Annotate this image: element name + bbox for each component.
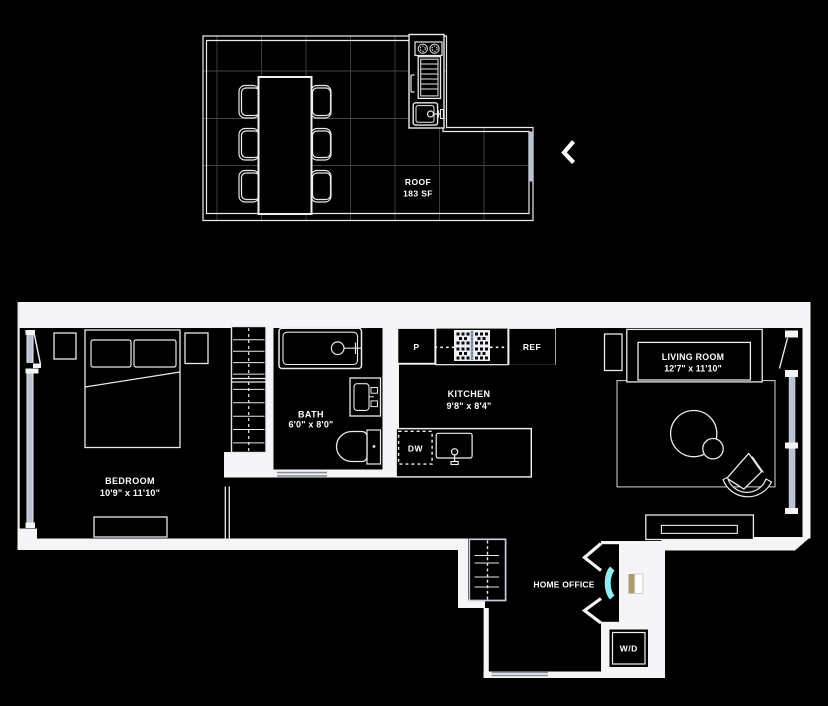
svg-text:BEDROOM: BEDROOM [105,476,155,486]
svg-text:KITCHEN: KITCHEN [448,389,491,399]
svg-text:DW: DW [408,444,424,454]
svg-text:12'7" x 11'10": 12'7" x 11'10" [664,364,721,374]
svg-text:ROOF: ROOF [405,177,431,187]
svg-text:9'8" x 8'4": 9'8" x 8'4" [446,401,491,411]
svg-text:P: P [413,342,419,352]
svg-text:W/D: W/D [620,644,638,654]
svg-text:6'0" x 8'0": 6'0" x 8'0" [288,420,333,430]
svg-text:HOME OFFICE: HOME OFFICE [533,580,594,590]
svg-text:183 SF: 183 SF [403,189,433,199]
svg-text:LIVING ROOM: LIVING ROOM [662,352,724,362]
svg-text:BATH: BATH [298,410,324,420]
svg-text:REF: REF [523,342,541,352]
svg-text:10'9" x 11'10": 10'9" x 11'10" [100,488,160,498]
